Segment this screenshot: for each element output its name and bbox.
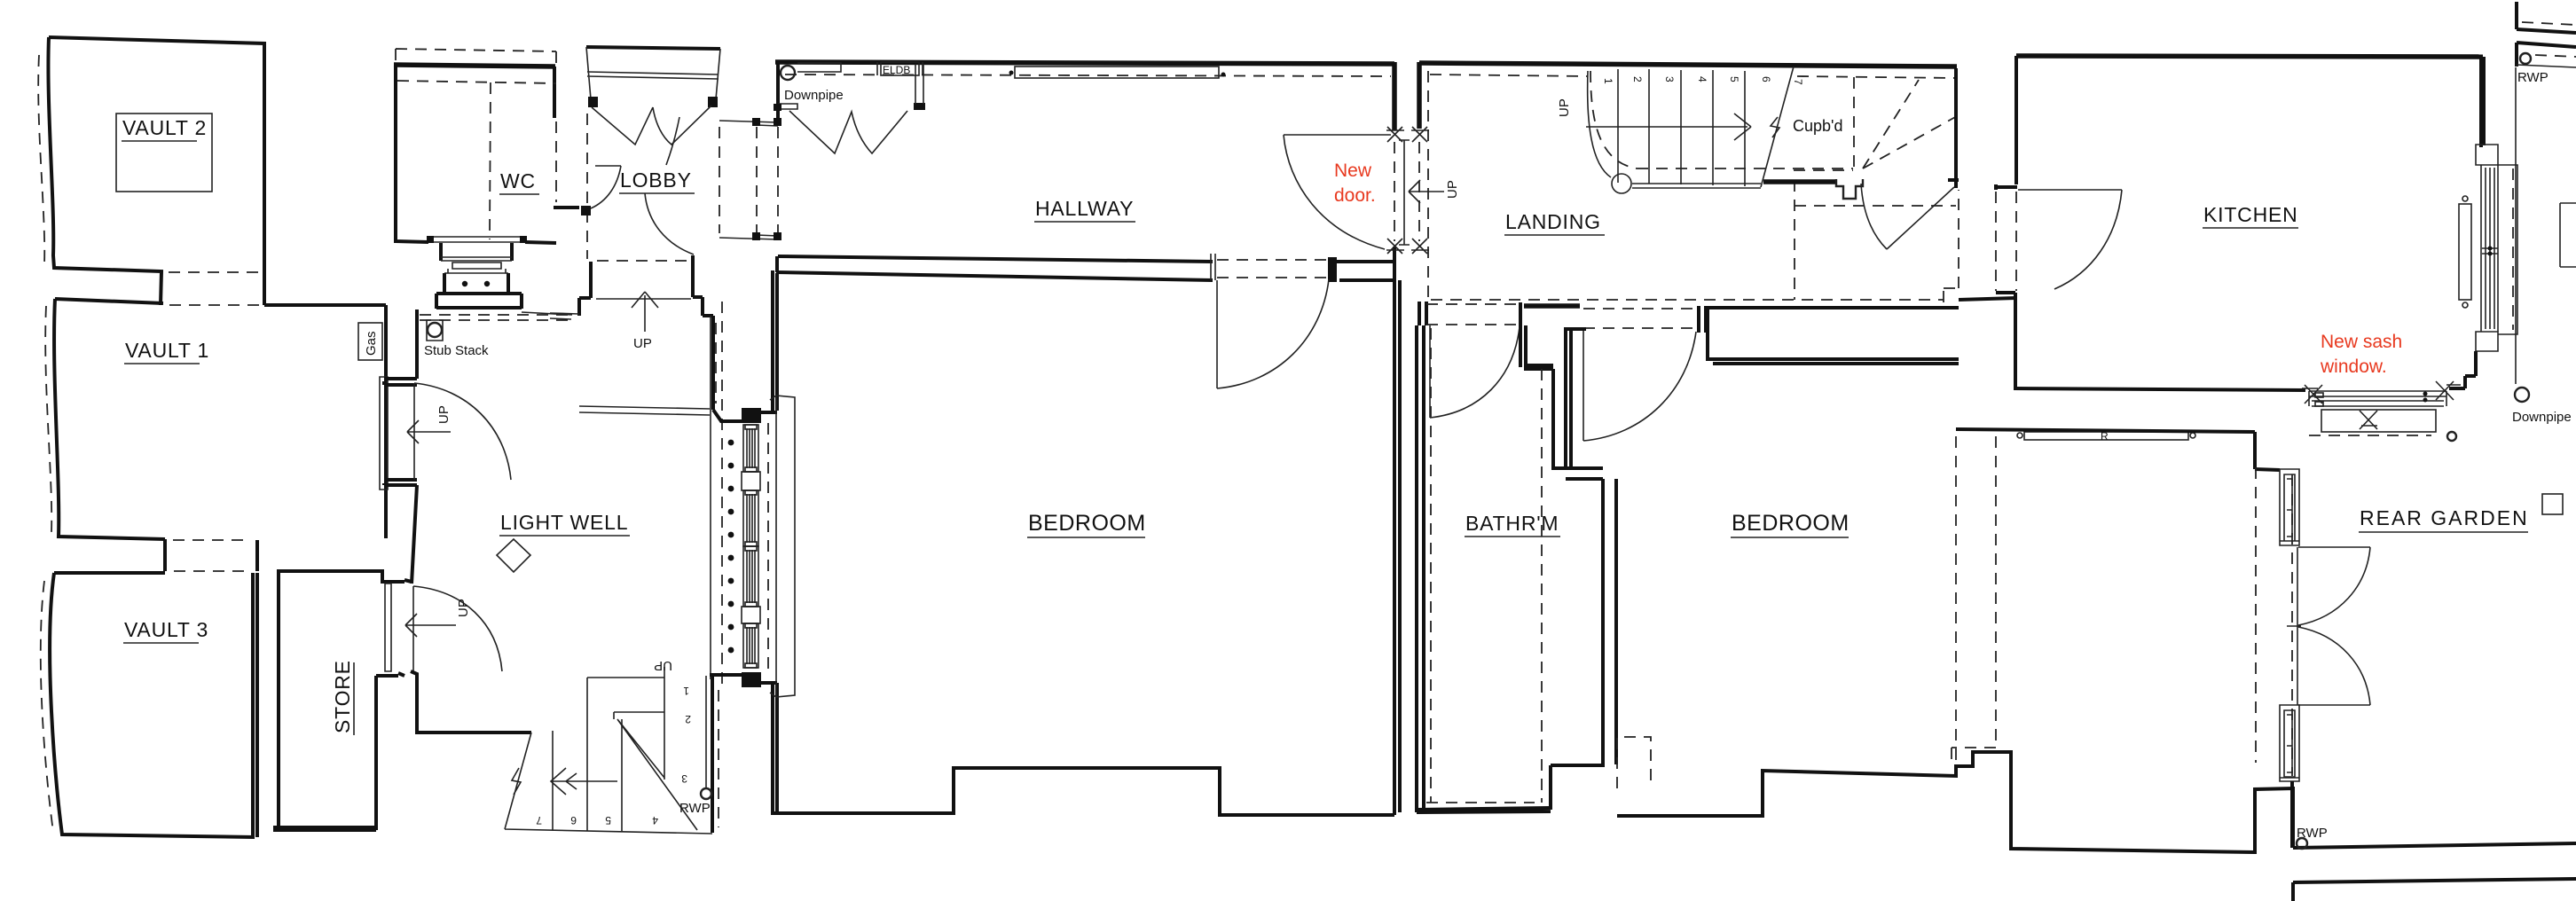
svg-text:VAULT 3: VAULT 3: [124, 618, 208, 641]
svg-text:LIGHT WELL: LIGHT WELL: [500, 511, 628, 534]
svg-text:LOBBY: LOBBY: [620, 168, 692, 192]
svg-text:3: 3: [681, 772, 687, 785]
svg-text:STORE: STORE: [331, 660, 354, 733]
svg-text:1: 1: [1602, 78, 1614, 84]
svg-text:Downpipe: Downpipe: [2512, 410, 2572, 425]
svg-text:UP: UP: [654, 658, 672, 673]
svg-text:Gas: Gas: [364, 331, 379, 356]
svg-text:7: 7: [1792, 79, 1804, 85]
svg-text:REAR GARDEN: REAR GARDEN: [2360, 506, 2529, 529]
svg-text:door.: door.: [1334, 185, 1376, 206]
svg-text:Downpipe: Downpipe: [784, 88, 844, 103]
svg-text:3: 3: [1663, 76, 1676, 82]
svg-text:6: 6: [1760, 76, 1772, 82]
svg-text:2: 2: [1631, 76, 1644, 82]
svg-text:LANDING: LANDING: [1505, 210, 1601, 233]
svg-text:RWP: RWP: [2517, 70, 2549, 85]
svg-text:Cupb'd: Cupb'd: [1793, 117, 1842, 135]
svg-text:UP: UP: [633, 336, 652, 351]
svg-text:BEDROOM: BEDROOM: [1028, 511, 1146, 536]
svg-text:5: 5: [605, 814, 611, 827]
svg-text:WC: WC: [500, 169, 536, 192]
svg-text:4: 4: [652, 814, 658, 827]
svg-text:New sash: New sash: [2321, 332, 2402, 352]
svg-text:VAULT 2: VAULT 2: [122, 116, 207, 139]
svg-text:HALLWAY: HALLWAY: [1035, 197, 1134, 220]
svg-text:5: 5: [1728, 76, 1740, 82]
svg-text:BATHR'M: BATHR'M: [1465, 512, 1559, 535]
svg-text:UP: UP: [1557, 98, 1572, 117]
svg-text:New: New: [1334, 161, 1372, 181]
svg-text:6: 6: [570, 814, 577, 827]
svg-text:BEDROOM: BEDROOM: [1732, 511, 1850, 536]
svg-text:2: 2: [685, 713, 691, 725]
svg-text:UP: UP: [436, 405, 452, 424]
svg-text:window.: window.: [2320, 356, 2387, 377]
svg-text:Stub Stack: Stub Stack: [424, 343, 489, 358]
svg-text:UP: UP: [456, 599, 471, 617]
svg-text:UP: UP: [1445, 180, 1460, 199]
svg-text:ELDB: ELDB: [883, 64, 910, 76]
svg-text:KITCHEN: KITCHEN: [2203, 203, 2298, 226]
svg-text:RWP: RWP: [679, 801, 711, 816]
svg-text:4: 4: [1696, 76, 1708, 82]
svg-text:7: 7: [536, 814, 542, 827]
svg-text:VAULT 1: VAULT 1: [125, 339, 209, 362]
svg-text:1: 1: [683, 685, 689, 697]
